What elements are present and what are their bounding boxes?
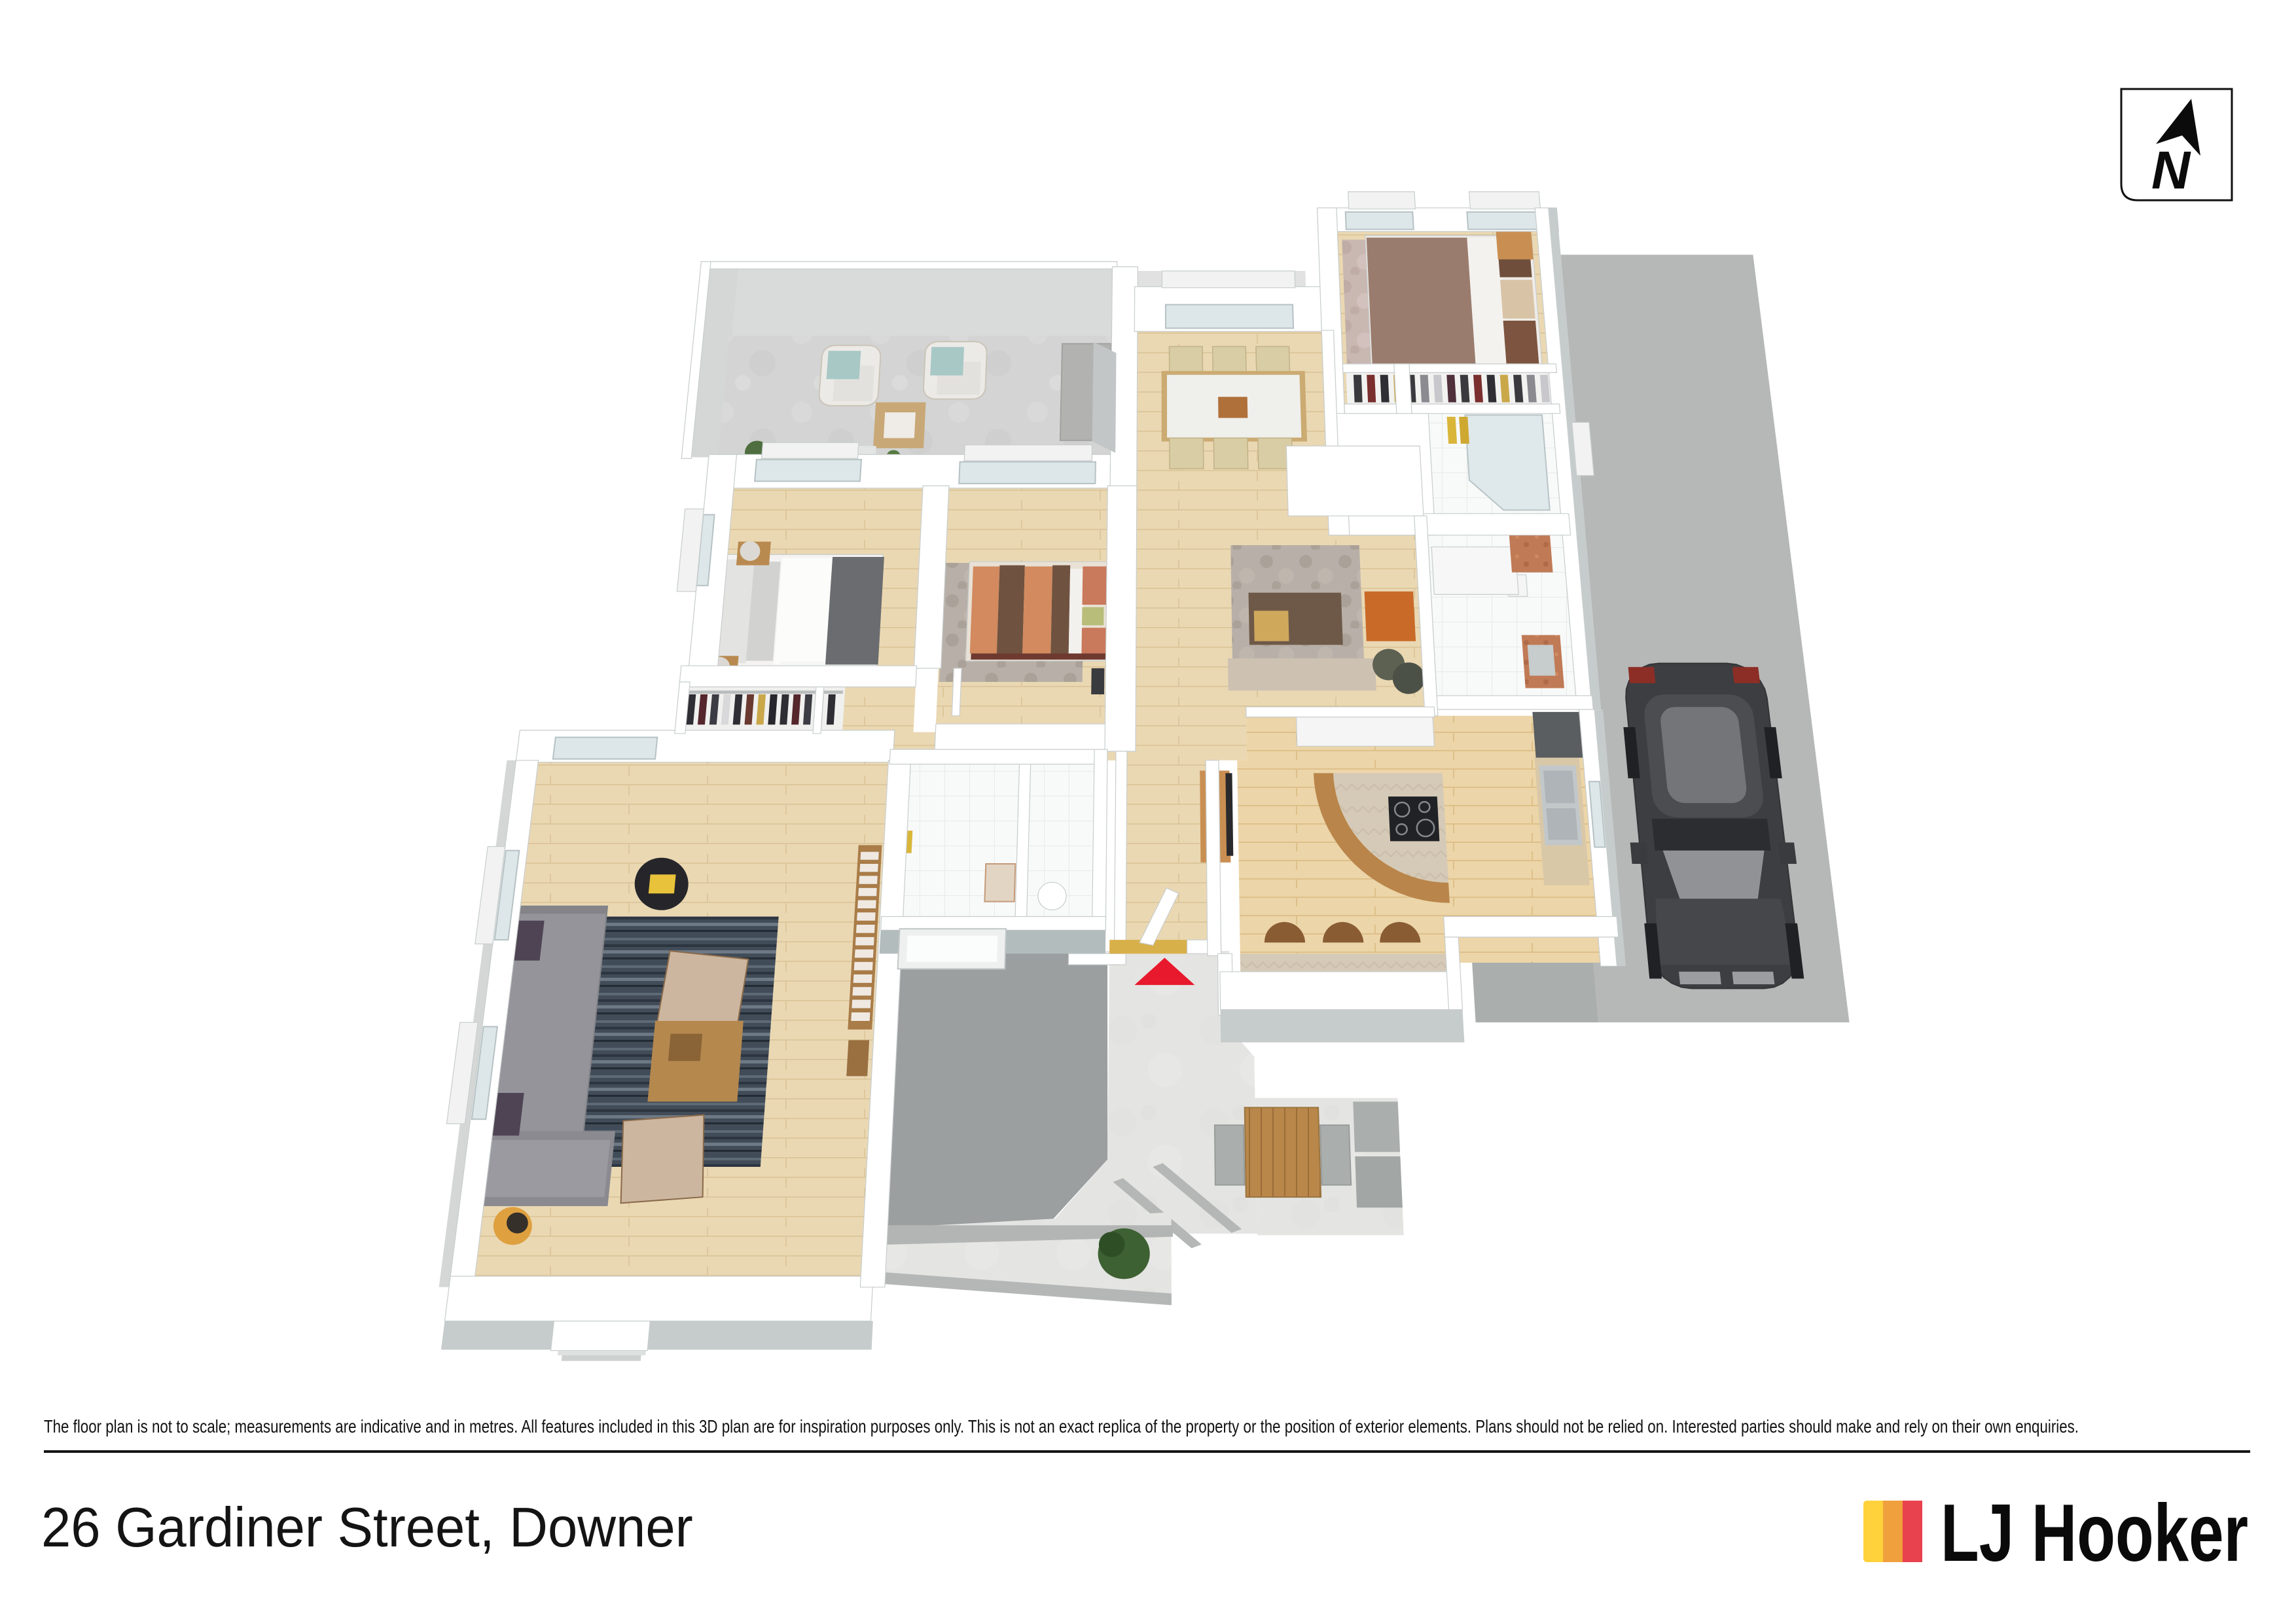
svg-text:LJ Hooker: LJ Hooker (1941, 1501, 2248, 1578)
svg-text:N: N (2151, 141, 2191, 200)
